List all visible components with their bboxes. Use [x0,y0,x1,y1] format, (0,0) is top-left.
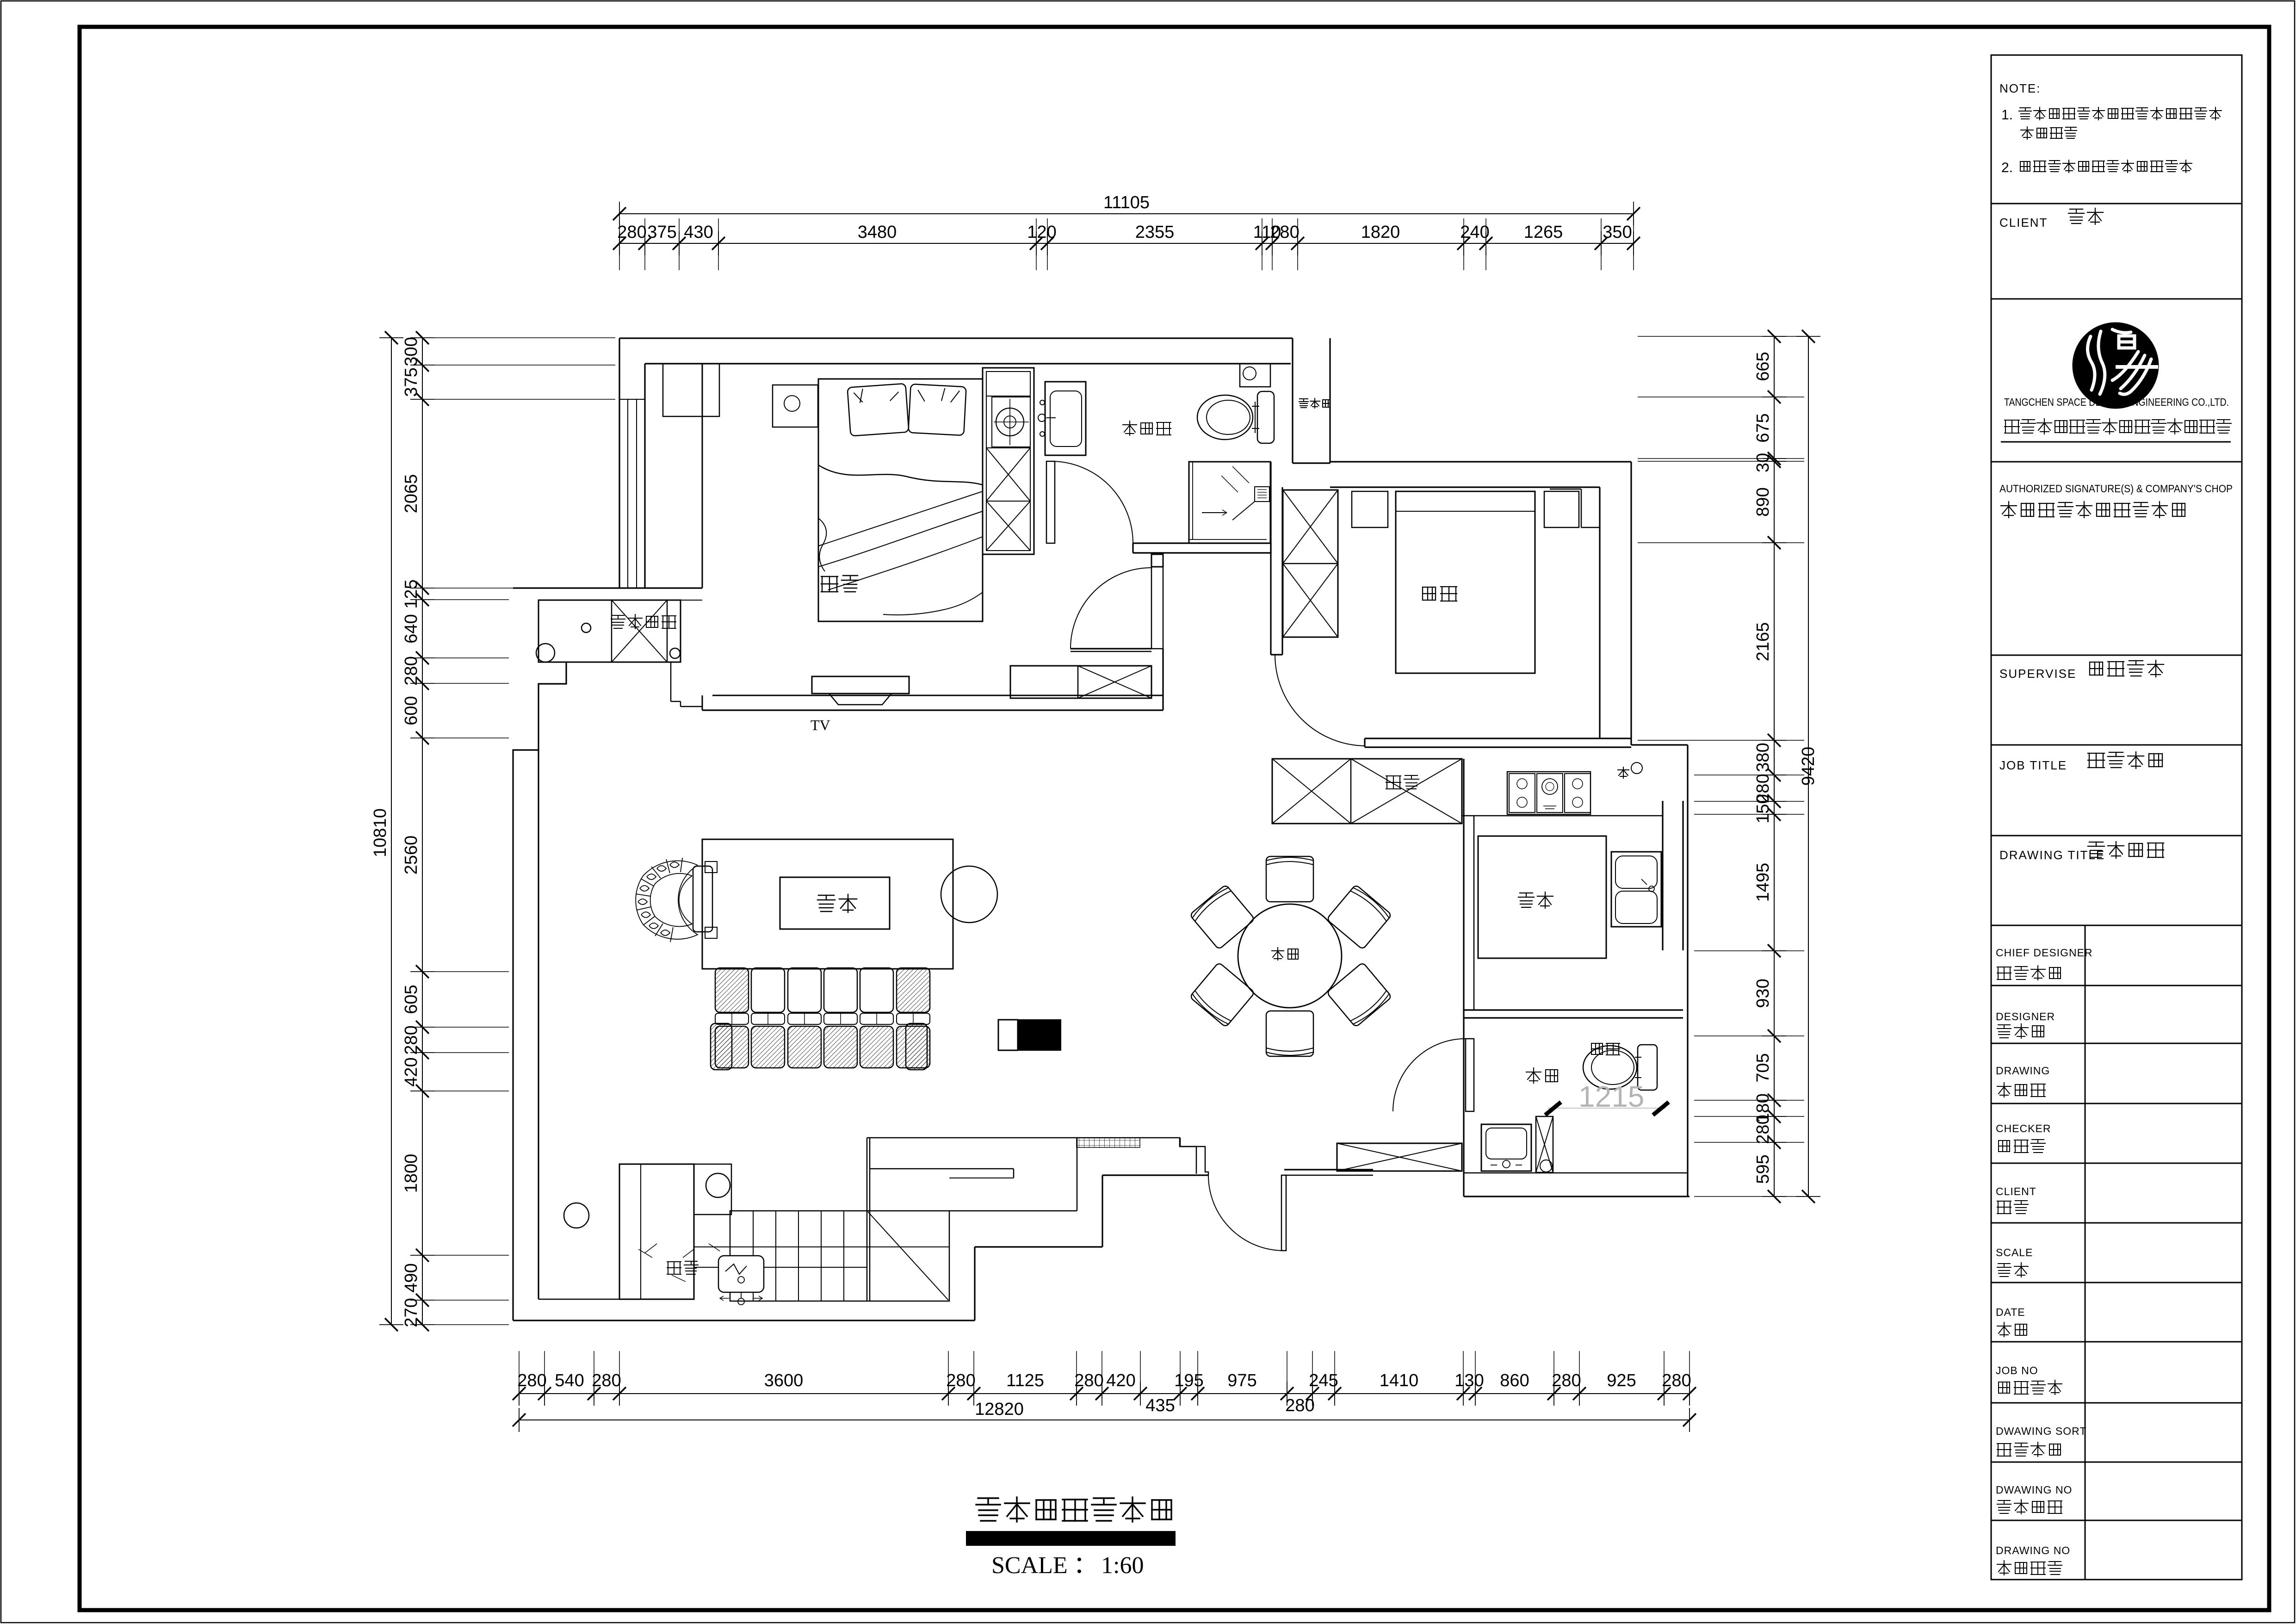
svg-text:CHECKER: CHECKER [1996,1122,2051,1134]
svg-text:DRAWING NO: DRAWING NO [1996,1544,2070,1556]
svg-text:30: 30 [1753,453,1773,472]
svg-text:130: 130 [1454,1371,1484,1390]
svg-text:SCALE: SCALE [1996,1246,2033,1258]
svg-text:3600: 3600 [764,1371,804,1390]
svg-text:SUPERVISE: SUPERVISE [1999,667,2076,681]
svg-text:540: 540 [555,1371,584,1390]
svg-text:430: 430 [684,223,713,242]
svg-text:1495: 1495 [1753,863,1773,902]
svg-text:：: ： [1073,1552,1097,1579]
svg-text:280: 280 [517,1371,546,1390]
svg-text:595: 595 [1753,1154,1773,1184]
svg-text:665: 665 [1753,352,1773,381]
svg-text:890: 890 [1753,487,1773,516]
svg-text:9420: 9420 [1799,747,1818,786]
svg-text:1800: 1800 [402,1154,421,1193]
svg-text:280: 280 [1074,1371,1103,1390]
svg-text:12820: 12820 [975,1400,1024,1419]
svg-text:1265: 1265 [1524,223,1563,242]
svg-text:125: 125 [402,579,421,608]
svg-text:675: 675 [1753,413,1773,442]
svg-text:11105: 11105 [1103,193,1150,212]
svg-text:350: 350 [1603,223,1632,242]
svg-text:280: 280 [1753,1115,1773,1144]
svg-text:TV: TV [811,717,830,733]
svg-text:1820: 1820 [1361,223,1400,242]
svg-text:TANGCHEN SPACE DESIGN ENGINEER: TANGCHEN SPACE DESIGN ENGINEERING CO.,LT… [2004,396,2229,408]
svg-text:245: 245 [1309,1371,1338,1390]
svg-text:1125: 1125 [1006,1371,1044,1390]
svg-text:NOTE:: NOTE: [1999,81,2041,95]
svg-text:280: 280 [402,656,421,685]
svg-text:1.: 1. [2001,107,2013,123]
svg-text:AUTHORIZED SIGNATURE(S) & COMP: AUTHORIZED SIGNATURE(S) & COMPANY'S CHOP [1999,483,2233,495]
svg-text:120: 120 [1027,223,1056,242]
svg-text:280: 280 [1662,1371,1691,1390]
svg-text:195: 195 [1174,1371,1203,1390]
svg-text:2560: 2560 [402,836,421,875]
svg-text:600: 600 [402,696,421,725]
svg-text:DESIGNER: DESIGNER [1996,1010,2055,1023]
svg-text:10810: 10810 [371,808,390,857]
svg-text:CLIENT: CLIENT [1996,1185,2036,1197]
svg-text:925: 925 [1607,1371,1636,1390]
svg-text:490: 490 [402,1263,421,1292]
svg-text:2165: 2165 [1753,622,1773,662]
svg-text:2.: 2. [2001,160,2013,175]
svg-text:280: 280 [1552,1371,1581,1390]
svg-text:150: 150 [1753,794,1773,823]
svg-text:975: 975 [1227,1371,1256,1390]
svg-text:CLIENT: CLIENT [1999,216,2048,229]
svg-text:3480: 3480 [858,223,897,242]
svg-text:280: 280 [1285,1396,1314,1415]
svg-text:860: 860 [1500,1371,1529,1390]
svg-text:705: 705 [1753,1053,1773,1082]
svg-text:375: 375 [402,367,421,397]
svg-text:DWAWING SORT: DWAWING SORT [1996,1425,2086,1437]
svg-text:270: 270 [402,1298,421,1327]
svg-text:JOB NO: JOB NO [1996,1364,2038,1376]
svg-text:DRAWING TITLE: DRAWING TITLE [1999,848,2105,862]
svg-text:380: 380 [1753,743,1773,772]
svg-text:375: 375 [647,223,676,242]
svg-text:SCALE: SCALE [991,1552,1068,1579]
svg-text:280: 280 [617,223,646,242]
svg-text:DATE: DATE [1996,1306,2025,1318]
svg-text:420: 420 [1106,1371,1135,1390]
svg-text:240: 240 [1460,223,1489,242]
svg-text:1410: 1410 [1380,1371,1419,1390]
svg-text:280: 280 [592,1371,621,1390]
svg-text:930: 930 [1753,979,1773,1008]
svg-text:DWAWING NO: DWAWING NO [1996,1484,2072,1496]
svg-text:JOB TITLE: JOB TITLE [1999,758,2067,772]
svg-text:280: 280 [946,1371,975,1390]
svg-text:CHIEF DESIGNER: CHIEF DESIGNER [1996,947,2093,959]
svg-text:2065: 2065 [402,474,421,514]
svg-text:2355: 2355 [1135,223,1175,242]
svg-text:640: 640 [402,614,421,643]
svg-text:280: 280 [1270,223,1299,242]
svg-text:420: 420 [402,1057,421,1086]
svg-text:DRAWING: DRAWING [1996,1065,2050,1077]
svg-text:280: 280 [402,1025,421,1054]
svg-text:435: 435 [1145,1396,1175,1415]
svg-text:1:60: 1:60 [1101,1552,1144,1579]
svg-text:605: 605 [402,985,421,1014]
svg-text:300: 300 [402,337,421,366]
